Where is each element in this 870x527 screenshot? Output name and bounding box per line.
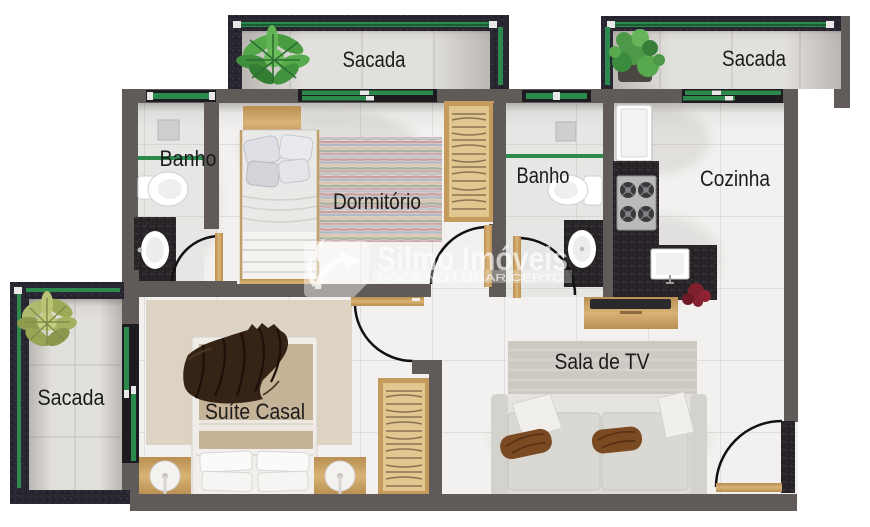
svg-text:Suíte Casal: Suíte Casal: [205, 399, 305, 424]
svg-text:Cozinha: Cozinha: [700, 166, 771, 191]
svg-text:Banho: Banho: [517, 163, 570, 188]
svg-text:Sala de TV: Sala de TV: [555, 349, 650, 374]
svg-text:Sacada: Sacada: [343, 47, 407, 72]
svg-text:Sacada: Sacada: [38, 385, 106, 410]
svg-text:VOCÊ NO LUGAR CERTO: VOCÊ NO LUGAR CERTO: [378, 271, 564, 284]
svg-text:Banho: Banho: [160, 146, 217, 171]
svg-text:Sacada: Sacada: [722, 46, 787, 71]
svg-text:Dormitório: Dormitório: [333, 189, 421, 214]
